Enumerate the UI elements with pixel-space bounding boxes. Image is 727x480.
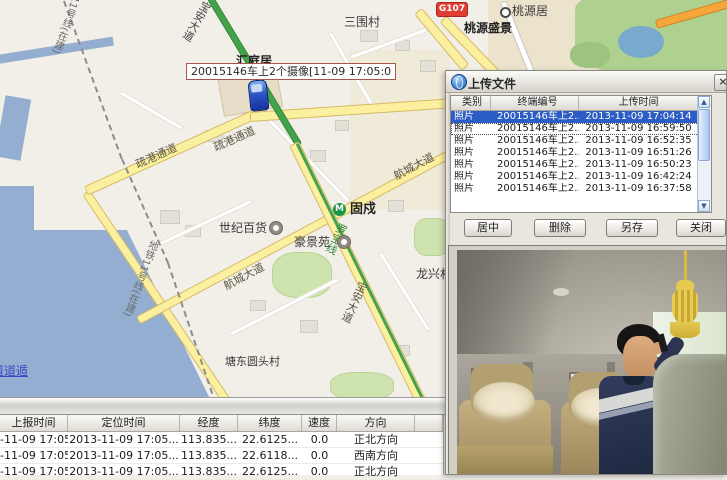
scroll-down-icon[interactable]: ▼: [698, 200, 710, 212]
place-taoyuanju: 桃源居: [512, 5, 548, 17]
close-button[interactable]: 关闭: [676, 219, 726, 237]
upload-files-table: 类别 终端编号 上传时间 照片 20015146车上2... 2013-11-0…: [450, 95, 712, 213]
center-button[interactable]: 居中: [464, 219, 512, 237]
track-table: 上报时间 定位时间 经度 纬度 速度 方向 -11-09 17:05... 20…: [0, 415, 455, 475]
tassel-ends: [670, 322, 700, 338]
files-table-body: 照片 20015146车上2... 2013-11-09 17:04:14 照片…: [451, 111, 711, 195]
cell-fix-time: 2013-11-09 17:05...: [68, 432, 180, 447]
cell-upload-time: 2013-11-09 16:52:35: [579, 135, 698, 147]
park-pond: [618, 26, 664, 58]
cell-upload-time: 2013-11-09 16:50:23: [579, 159, 698, 171]
file-row[interactable]: 照片 20015146车上2... 2013-11-09 16:51:26: [451, 147, 711, 159]
place-taoyuan-shengjing: 桃源盛景: [464, 22, 512, 34]
globe-icon: [451, 74, 467, 90]
cell-speed: 0.0: [302, 448, 337, 463]
cell-empty: [415, 432, 443, 447]
cell-direction: 正北方向: [337, 432, 415, 447]
building: [388, 200, 404, 212]
cell-terminal: 20015146车上2...: [491, 111, 579, 123]
vehicle-tooltip: 20015146车上2个摄像[11-09 17:05:0: [186, 63, 396, 80]
pond-left: [0, 95, 31, 161]
road-label-shugang: 疏港通道: [134, 142, 179, 170]
dome-light: [553, 288, 569, 296]
col-latitude[interactable]: 纬度: [238, 415, 302, 431]
metro-station-icon: M: [333, 203, 346, 216]
close-icon[interactable]: ×: [714, 74, 727, 91]
track-row[interactable]: -11-09 17:05... 2013-11-09 17:05... 113.…: [0, 432, 455, 448]
vehicle-marker[interactable]: [247, 79, 269, 112]
building: [160, 210, 180, 224]
vehicle-windshield: [251, 84, 263, 93]
minor-road: [119, 90, 184, 130]
file-row[interactable]: 照片 20015146车上2... 2013-11-09 17:04:14: [451, 111, 711, 123]
metro-line-dash: [63, 1, 123, 159]
cell-fix-time: 2013-11-09 17:05...: [68, 464, 180, 479]
cell-upload-time: 2013-11-09 16:37:58: [579, 183, 698, 195]
cell-category: 照片: [451, 159, 491, 171]
cell-latitude: 22.6125...: [238, 464, 302, 479]
cell-upload-time: 2013-11-09 16:59:50: [579, 123, 698, 135]
park: [272, 252, 332, 298]
col-report-time[interactable]: 上报时间: [0, 415, 68, 431]
cell-latitude: 22.6125...: [238, 432, 302, 447]
cell-latitude: 22.6118...: [238, 448, 302, 463]
file-row[interactable]: 照片 20015146车上2... 2013-11-09 16:52:35: [451, 135, 711, 147]
cell-terminal: 20015146车上2...: [491, 159, 579, 171]
files-table-scrollbar[interactable]: ▲ ▼: [697, 96, 711, 212]
file-row[interactable]: 照片 20015146车上2... 2013-11-09 16:37:58: [451, 183, 711, 195]
foreground-seatback: [653, 354, 727, 475]
col-direction[interactable]: 方向: [337, 415, 415, 431]
scrollbar-thumb[interactable]: [698, 109, 710, 161]
photo-preview-frame: [448, 245, 727, 475]
cell-upload-time: 2013-11-09 16:42:24: [579, 171, 698, 183]
building: [420, 60, 436, 72]
dialog-title: 上传文件: [468, 75, 516, 92]
cell-report-time: -11-09 17:05...: [0, 432, 68, 447]
person-face: [623, 336, 657, 380]
cell-category: 照片: [451, 135, 491, 147]
col-empty: [415, 415, 443, 431]
file-row[interactable]: 照片 20015146车上2... 2013-11-09 16:42:24: [451, 171, 711, 183]
col-upload-time[interactable]: 上传时间: [579, 96, 698, 110]
place-marker-dot: [500, 7, 511, 18]
dialog-titlebar[interactable]: 上传文件 ×: [446, 71, 726, 93]
place-shiji-baihuo: 世纪百货: [219, 222, 267, 234]
shirt-collar: [623, 376, 645, 385]
scenic-icon: [337, 235, 351, 249]
road-label-baoan-north: 宝安大道: [181, 0, 213, 43]
cell-terminal: 20015146车上2...: [491, 147, 579, 159]
col-category[interactable]: 类别: [451, 96, 491, 110]
cell-longitude: 113.835...: [180, 432, 238, 447]
track-row[interactable]: -11-09 17:05... 2013-11-09 17:05... 113.…: [0, 448, 455, 464]
cell-direction: 西南方向: [337, 448, 415, 463]
cell-upload-time: 2013-11-09 16:51:26: [579, 147, 698, 159]
file-row[interactable]: 照片 20015146车上2... 2013-11-09 16:50:23: [451, 159, 711, 171]
cell-empty: [415, 464, 443, 479]
cell-terminal: 20015146车上2...: [491, 135, 579, 147]
cell-upload-time: 2013-11-09 17:04:14: [579, 111, 698, 123]
cell-direction: 正北方向: [337, 464, 415, 479]
col-speed[interactable]: 速度: [302, 415, 337, 431]
place-tangdong: 塘东圆头村: [225, 356, 280, 367]
cell-category: 照片: [451, 123, 491, 135]
cell-longitude: 113.835...: [180, 464, 238, 479]
col-terminal[interactable]: 终端编号: [491, 96, 579, 110]
cell-category: 照片: [451, 183, 491, 195]
cell-terminal: 20015146车上2...: [491, 171, 579, 183]
scroll-up-icon[interactable]: ▲: [698, 96, 710, 108]
bone-pillow-left: [473, 382, 535, 422]
g107-route-badge: G107: [436, 2, 468, 17]
cell-report-time: -11-09 17:05: [0, 464, 68, 479]
col-longitude[interactable]: 经度: [180, 415, 238, 431]
building: [300, 320, 318, 333]
sea-water: [0, 230, 235, 397]
cell-category: 照片: [451, 147, 491, 159]
cell-fix-time: 2013-11-09 17:05...: [68, 448, 180, 463]
col-fix-time[interactable]: 定位时间: [68, 415, 180, 431]
building: [360, 30, 378, 42]
park-small: [570, 42, 610, 68]
horizontal-splitter[interactable]: [0, 397, 455, 415]
track-table-body: -11-09 17:05... 2013-11-09 17:05... 113.…: [0, 432, 455, 480]
track-row[interactable]: -11-09 17:05 2013-11-09 17:05... 113.835…: [0, 464, 455, 480]
file-row[interactable]: 照片 20015146车上2... 2013-11-09 16:59:50: [451, 123, 711, 135]
cell-speed: 0.0: [302, 432, 337, 447]
department-store-icon: [269, 221, 283, 235]
photo-preview[interactable]: [457, 250, 727, 475]
map-watermark-link[interactable]: 道道遁: [0, 362, 28, 379]
track-table-header: 上报时间 定位时间 经度 纬度 速度 方向: [0, 415, 455, 432]
cell-category: 照片: [451, 111, 491, 123]
cell-terminal: 20015146车上2...: [491, 183, 579, 195]
upload-files-dialog: 上传文件 × 类别 终端编号 上传时间 照片 20015146车上2... 20…: [445, 70, 727, 475]
cell-report-time: -11-09 17:05...: [0, 448, 68, 463]
cell-longitude: 113.835...: [180, 448, 238, 463]
road-label-baoan-south: 宝安大道: [340, 280, 369, 325]
delete-button[interactable]: 删除: [534, 219, 586, 237]
building: [335, 120, 349, 131]
place-haojingyuan: 豪景苑: [294, 236, 330, 248]
seat-cushion: [457, 446, 553, 475]
place-gushu: 固戍: [350, 203, 376, 216]
building: [250, 300, 266, 311]
tassel-body: [672, 290, 698, 324]
cell-speed: 0.0: [302, 464, 337, 479]
water-inlet: [0, 186, 34, 234]
save-as-button[interactable]: 另存: [606, 219, 658, 237]
files-table-header: 类别 终端编号 上传时间: [451, 96, 711, 111]
place-sanweicun: 三围村: [344, 16, 380, 28]
cell-terminal: 20015146车上2...: [491, 123, 579, 135]
park: [330, 372, 394, 397]
cell-empty: [415, 448, 443, 463]
tassel-string: [684, 250, 687, 284]
cell-category: 照片: [451, 171, 491, 183]
